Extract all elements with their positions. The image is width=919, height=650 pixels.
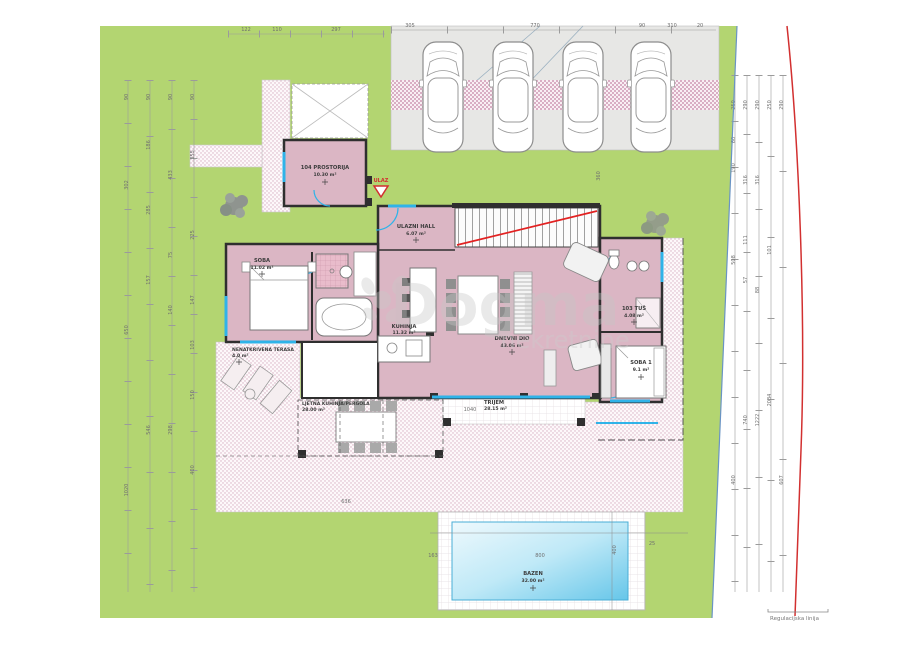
dim-label: 90	[190, 94, 196, 100]
dim-label: 305	[405, 23, 415, 29]
dim-label: 103	[190, 340, 196, 350]
dim-label: 800	[535, 553, 545, 559]
dim-label: 88	[755, 287, 761, 293]
car-icon	[490, 42, 537, 152]
dim-label: 1020	[124, 484, 130, 497]
dim-label: 1040	[464, 407, 477, 413]
dim-label: 607	[779, 475, 785, 485]
bed-icon	[250, 266, 308, 330]
dim-label: 147	[190, 295, 196, 305]
dim-label: 250	[767, 100, 773, 110]
room-utility	[302, 342, 378, 398]
dim-label: 140	[168, 305, 174, 315]
dim-chain-right	[735, 75, 783, 592]
dim-label: 360	[596, 171, 602, 181]
room-name: NENATKRIVENA TERASA	[232, 347, 294, 353]
legend-note-text: Regulacijska linija	[770, 616, 819, 622]
dim-label: 2034	[767, 394, 773, 407]
regulation-red-line	[787, 26, 803, 616]
room-area: 11.02 m²	[251, 265, 274, 271]
room-area: 10.30 m²	[314, 172, 337, 178]
room-area: 6.07 m²	[406, 231, 426, 237]
dim-label: 290	[779, 100, 785, 110]
dim-label: 546	[146, 425, 152, 435]
room-area: 9.1 m²	[633, 367, 650, 373]
dim-label: 298	[168, 425, 174, 435]
dim-label: 122	[241, 27, 251, 33]
dim-label: 75	[168, 252, 174, 258]
dim-label: 157	[146, 275, 152, 285]
floor-plan-canvas: 122 110 297 305 770 90 310 20 90 302 650…	[0, 0, 919, 650]
paved-path-horizontal	[190, 145, 262, 167]
watermark-tagline: nekretnine	[500, 326, 629, 354]
outdoor-table-icon	[336, 412, 396, 442]
dim-label: 190	[731, 163, 737, 173]
dim-label: 111	[743, 235, 749, 245]
dim-label: 400	[731, 475, 737, 485]
dim-label: 1222	[755, 414, 761, 427]
site-plan-drawing: 122 110 297 305 770 90 310 20 90 302 650…	[0, 0, 919, 650]
room-area: 4.08 m²	[624, 313, 644, 319]
sink-icon	[340, 266, 352, 278]
dim-label: 650	[124, 325, 130, 335]
dim-label: 355	[190, 150, 196, 160]
dim-label: 57	[743, 277, 749, 283]
entry-canopy	[292, 84, 368, 138]
dim-label: 25	[649, 541, 655, 547]
dim-label: 90	[146, 94, 152, 100]
tv-unit	[544, 350, 556, 386]
room-area: 28.00 m²	[302, 407, 325, 413]
toilet-icon	[609, 255, 619, 269]
dim-label: 225	[190, 230, 196, 240]
dim-label: 508	[731, 255, 737, 265]
dim-label: 90	[168, 94, 174, 100]
car-icon	[560, 42, 607, 152]
dim-label: 90	[639, 23, 645, 29]
room-area: 32.00 m²	[522, 578, 545, 584]
dim-label: 186	[146, 140, 152, 150]
room-name: SOBA	[254, 258, 270, 264]
room-name: TRIJEM	[484, 400, 504, 406]
room-area: 4.0 m²	[232, 353, 249, 359]
dim-label: 770	[530, 23, 540, 29]
dim-label: 101	[767, 245, 773, 255]
room-name: 104 PROSTORIJA	[301, 165, 349, 171]
parking-area	[391, 26, 719, 152]
legend-note: Regulacijska linija	[768, 609, 828, 622]
dim-label: 316	[743, 175, 749, 185]
room-name: SOBA 1	[630, 360, 652, 366]
dim-label: 290	[755, 100, 761, 110]
room-area: 28.15 m²	[484, 406, 507, 412]
entrance-label: ULAZ	[374, 178, 389, 184]
nightstand-icon	[242, 262, 250, 272]
dim-label: 636	[341, 499, 351, 505]
car-icon	[420, 42, 467, 152]
room-name: ULAZNI HALL	[397, 224, 436, 230]
dim-label: 310	[667, 23, 677, 29]
room-name: BAZEN	[523, 571, 543, 577]
dim-label: 302	[124, 180, 130, 190]
dim-label: 433	[168, 170, 174, 180]
sink-icon	[627, 261, 637, 271]
dim-label: 400	[612, 545, 618, 555]
stairs	[452, 203, 600, 247]
sink-icon	[639, 261, 649, 271]
dim-label: 290	[743, 100, 749, 110]
dim-label: 150	[190, 390, 196, 400]
dim-label: 90	[124, 94, 130, 100]
dim-label: 740	[743, 415, 749, 425]
car-icon	[628, 42, 675, 152]
room-name: 103 TUŠ	[622, 305, 646, 312]
nightstand-icon	[308, 262, 316, 272]
dim-label: 163	[428, 553, 438, 559]
dim-label: 316	[755, 175, 761, 185]
dim-label: 285	[146, 205, 152, 215]
room-name: LJETNA KUHINJA/PERGOLA	[302, 401, 370, 407]
dim-label: 297	[331, 27, 341, 33]
dim-label: 110	[272, 27, 282, 33]
dim-label: 20	[697, 23, 703, 29]
dim-label: 400	[190, 465, 196, 475]
